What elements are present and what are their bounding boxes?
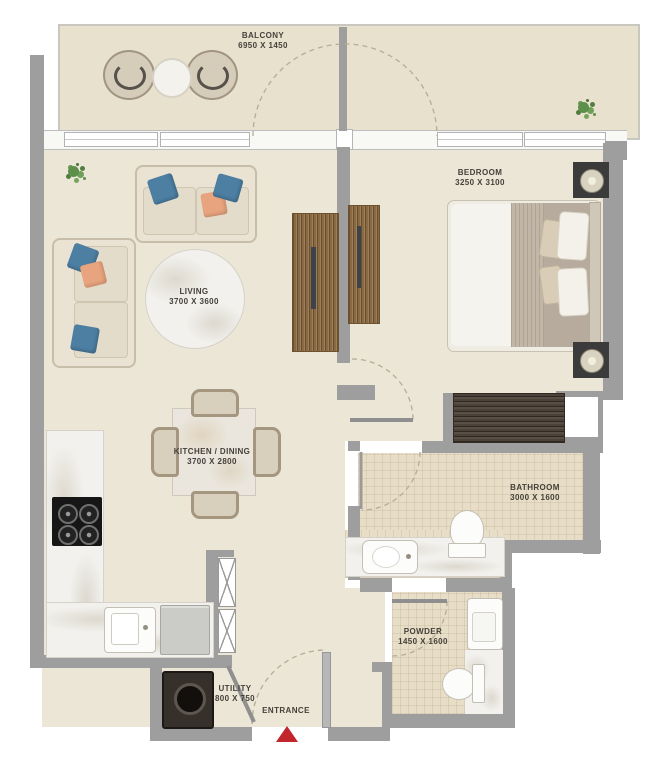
kitchen-dining-name: KITCHEN / DINING (162, 447, 262, 457)
utility-dims: 800 X 750 (185, 694, 285, 704)
powder-dims: 1450 X 1600 (373, 637, 473, 647)
entrance-name: ENTRANCE (236, 706, 336, 716)
powder-name: POWDER (373, 627, 473, 637)
entrance-label: ENTRANCE (236, 706, 336, 716)
bedroom-name: BEDROOM (430, 168, 530, 178)
bedroom-dims: 3250 X 3100 (430, 178, 530, 188)
bathroom-label: BATHROOM 3000 X 1600 (485, 483, 585, 504)
living-name: LIVING (144, 287, 244, 297)
living-label: LIVING 3700 X 3600 (144, 287, 244, 308)
balcony-name: BALCONY (213, 31, 313, 41)
bathroom-dims: 3000 X 1600 (485, 493, 585, 503)
living-dims: 3700 X 3600 (144, 297, 244, 307)
powder-label: POWDER 1450 X 1600 (373, 627, 473, 648)
floor-plan: BALCONY 6950 X 1450 BEDROOM 3250 X 3100 … (0, 0, 660, 759)
kitchen-dining-label: KITCHEN / DINING 3700 X 2800 (162, 447, 262, 468)
utility-label: UTILITY 800 X 750 (185, 684, 285, 705)
bathroom-door-arc (362, 452, 420, 510)
balcony-dims: 6950 X 1450 (213, 41, 313, 51)
balcony-label: BALCONY 6950 X 1450 (213, 31, 313, 52)
bedroom-door-arc (352, 359, 413, 420)
bedroom-label: BEDROOM 3250 X 3100 (430, 168, 530, 189)
door-swing-overlay (0, 0, 660, 759)
utility-name: UTILITY (185, 684, 285, 694)
balcony-door-arc (253, 44, 437, 136)
bathroom-name: BATHROOM (485, 483, 585, 493)
kitchen-dining-dims: 3700 X 2800 (162, 457, 262, 467)
